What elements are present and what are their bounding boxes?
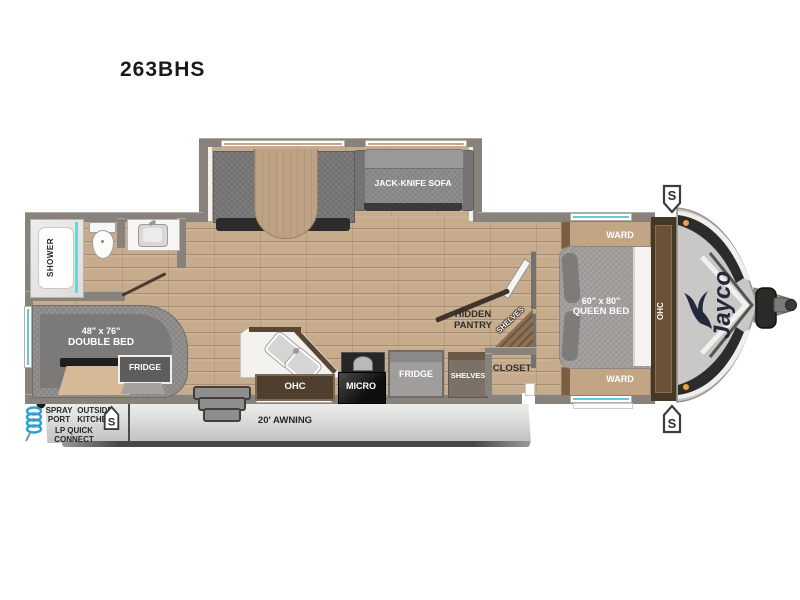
svg-text:S: S (668, 188, 677, 203)
lp-line2: CONNECT (48, 436, 100, 445)
awning-label: 20' AWNING (245, 416, 325, 427)
dinette-window (221, 140, 345, 147)
kitchen-faucet (293, 348, 299, 354)
band-shadow (62, 441, 530, 447)
vanity-sink-basin (143, 228, 162, 242)
stabilizer-marker-bottom: S (662, 404, 682, 434)
hidden-pantry-label: HIDDEN PANTRY (442, 310, 504, 331)
wardrobe-bottom-label: WARD (592, 374, 648, 384)
rear-fridge-label: FRIDGE (118, 363, 172, 373)
front-cap: Jayco (660, 195, 800, 415)
sofa-label: JACK-KNIFE SOFA (360, 179, 466, 189)
pantry-wall-upper (531, 251, 536, 309)
spray-port-hose-icon (24, 398, 48, 444)
rear-fridge-vent (121, 383, 165, 394)
kitchen-ohc-label: OHC (255, 382, 335, 393)
shower-label: SHOWER (47, 236, 64, 280)
hitch-ball (786, 300, 797, 311)
kitchen-shelves-top (449, 353, 487, 360)
wardrobe-top-label: WARD (592, 230, 648, 240)
stove-burner (353, 356, 373, 371)
window-glass (27, 309, 29, 365)
svg-text:S: S (108, 417, 115, 429)
propane-cover (756, 288, 776, 328)
closet-label: CLOSET (488, 364, 536, 375)
wardrobe-top-edge (562, 222, 570, 248)
clearance-light (683, 384, 689, 390)
kitchen-micro-label: MICRO (338, 381, 384, 391)
clearance-light (683, 220, 689, 226)
entry-step-3 (203, 408, 241, 422)
rear-window (24, 306, 32, 368)
kitchen-fridge-label: FRIDGE (388, 369, 444, 379)
sofa-window (365, 140, 467, 147)
window-curtain (368, 143, 464, 145)
band-divider (128, 404, 130, 441)
bedroom-bottom-window (570, 395, 632, 403)
slideout-left-trim (208, 147, 212, 221)
double-bed-size-label: 48" x 76" (48, 326, 154, 336)
window-glass (573, 398, 629, 400)
double-bed-label: DOUBLE BED (48, 337, 154, 348)
wardrobe-bottom-edge (562, 368, 570, 395)
svg-text:S: S (668, 416, 677, 431)
window-curtain (224, 143, 342, 145)
bedroom-entry-door-panel (525, 383, 535, 396)
queen-bed-size-label: 60" x 80" (559, 296, 643, 306)
sofa-front-edge (364, 203, 462, 211)
queen-bed-label: QUEEN BED (559, 307, 643, 318)
kitchen-fridge-top (390, 352, 442, 362)
stabilizer-marker-outside-kitchen: S (103, 405, 120, 431)
closet-top-wall (485, 347, 536, 355)
brand-text: Jayco (709, 271, 736, 339)
slideout-left-wall (199, 138, 208, 222)
page-title: 263BHS (120, 58, 205, 82)
bedroom-window-sill (573, 403, 633, 409)
counter-edge-top (249, 327, 301, 332)
stabilizer-marker-top: S (662, 184, 682, 214)
hidden-pantry-line2: PANTRY (442, 321, 504, 332)
kitchen-shelves-label: SHELVES (446, 372, 490, 380)
dinette-table (254, 149, 318, 239)
bedroom-top-window (570, 213, 632, 221)
window-glass (573, 216, 629, 218)
shower-glass (75, 222, 78, 293)
bathroom-mid-wall (117, 218, 125, 248)
lp-quick-connect-label: LP QUICK CONNECT (48, 427, 100, 445)
floorplan-canvas: 263BHS SPRAY PORT OUTSIDE KITCHEN LP QUI… (0, 0, 800, 600)
toilet-flush-dot (101, 240, 104, 243)
slideout-right-wall (473, 138, 482, 222)
